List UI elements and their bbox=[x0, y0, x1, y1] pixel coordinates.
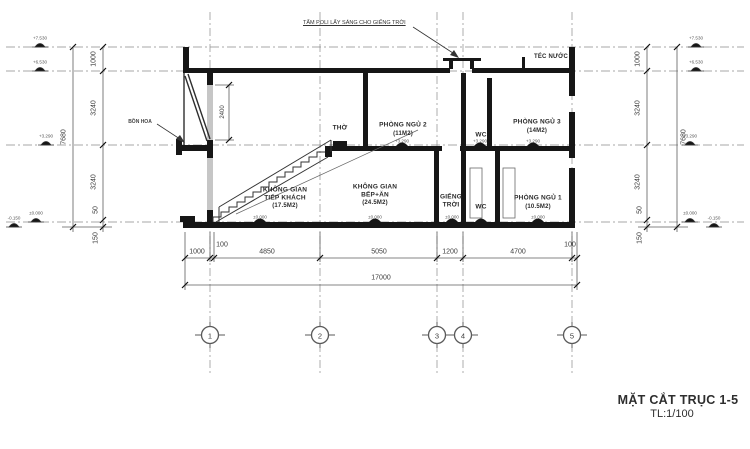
room-label-wc-upper: WC bbox=[475, 132, 486, 139]
room-label-living-1: KHÔNG GIAN bbox=[263, 187, 307, 194]
grid-bubble-1: 1 bbox=[208, 332, 212, 341]
room-label-kitchen-1: KHÔNG GIAN bbox=[353, 184, 397, 191]
room-area-bedroom1: (10.5M2) bbox=[525, 204, 551, 210]
flower-box-label: BỒN HOA bbox=[128, 119, 152, 125]
grid-bubble-5: 5 bbox=[570, 332, 574, 341]
section-linework bbox=[0, 0, 750, 449]
dim-left-3240b: 3240 bbox=[91, 174, 98, 190]
room-area-living: (17.5M2) bbox=[272, 203, 298, 209]
dim-right-3240a: 3240 bbox=[635, 100, 642, 116]
dim-bottom-total-17000: 17000 bbox=[371, 275, 390, 282]
room-area-bedroom3: (14M2) bbox=[527, 128, 547, 134]
room-label-bedroom1: PHÒNG NGỦ 1 bbox=[514, 195, 562, 202]
room-label-lightwell-1: GIẾNG bbox=[440, 194, 462, 201]
dim-left-3240a: 3240 bbox=[91, 100, 98, 116]
dim-bottom-5050: 5050 bbox=[371, 249, 387, 256]
water-tank-label: TÉC NƯỚC bbox=[534, 54, 568, 60]
dim-left-total-7680: 7680 bbox=[61, 129, 68, 145]
section-drawing-sheet: TẤM POLI LẤY SÁNG CHO GIẾNG TRỜI TÉC NƯỚ… bbox=[0, 0, 750, 449]
dim-bottom-4700: 4700 bbox=[510, 249, 526, 256]
dim-bottom-100a: 100 bbox=[216, 242, 228, 249]
dim-bottom-4850: 4850 bbox=[259, 249, 275, 256]
room-label-lightwell-2: TRỜI bbox=[443, 202, 460, 209]
altar-room-label: THỜ bbox=[333, 125, 348, 132]
grid-bubble-4: 4 bbox=[461, 332, 465, 341]
level-top-left: +7.530 bbox=[33, 36, 47, 41]
level-mark-lightwell: ±0.000 bbox=[445, 215, 459, 220]
level-floor2-right: +3.290 bbox=[683, 134, 697, 139]
dim-window-2400: 2400 bbox=[220, 105, 226, 118]
dim-bottom-1000: 1000 bbox=[189, 249, 205, 256]
room-label-wc-lower: WC bbox=[475, 204, 486, 211]
room-label-kitchen-2: BẾP+ĂN bbox=[361, 192, 389, 199]
level-outside-left: -0.150 bbox=[8, 216, 21, 221]
level-mark-bedroom2: +3.290 bbox=[395, 139, 409, 144]
dim-bottom-100b: 100 bbox=[564, 242, 576, 249]
level-outside-right: -0.150 bbox=[708, 216, 721, 221]
dim-right-150: 150 bbox=[637, 232, 644, 244]
grid-bubble-2: 2 bbox=[318, 332, 322, 341]
level-top-right: +7.530 bbox=[689, 36, 703, 41]
level-ground-right: ±0.000 bbox=[683, 211, 697, 216]
room-area-bedroom2: (11M2) bbox=[393, 131, 413, 137]
level-mark-bedroom1: ±0.000 bbox=[531, 215, 545, 220]
level-roof-left: +6.530 bbox=[33, 60, 47, 65]
skylight-annotation: TẤM POLI LẤY SÁNG CHO GIẾNG TRỜI bbox=[303, 20, 406, 26]
drawing-scale: TL:1/100 bbox=[650, 408, 693, 420]
dim-left-1000: 1000 bbox=[91, 51, 98, 67]
grid-bubble-3: 3 bbox=[435, 332, 439, 341]
level-mark-living: ±0.000 bbox=[253, 215, 267, 220]
level-roof-right: +6.530 bbox=[689, 60, 703, 65]
level-ground-left: ±0.000 bbox=[29, 211, 43, 216]
dim-right-50: 50 bbox=[637, 206, 644, 214]
level-mark-wc-upper: +3.290 bbox=[473, 139, 487, 144]
drawing-title: MẶT CẮT TRỤC 1-5 bbox=[618, 393, 739, 407]
dim-right-3240b: 3240 bbox=[635, 174, 642, 190]
room-label-living-2: TIẾP KHÁCH bbox=[264, 195, 306, 202]
level-mark-bedroom3: +3.290 bbox=[526, 139, 540, 144]
level-mark-kitchen: ±0.000 bbox=[368, 215, 382, 220]
dim-right-1000: 1000 bbox=[635, 51, 642, 67]
dim-bottom-1200: 1200 bbox=[442, 249, 458, 256]
level-floor2-left: +3.290 bbox=[39, 134, 53, 139]
dim-left-50: 50 bbox=[93, 206, 100, 214]
dim-left-150: 150 bbox=[93, 232, 100, 244]
room-label-bedroom3: PHÒNG NGỦ 3 bbox=[513, 119, 561, 126]
room-label-bedroom2: PHÒNG NGỦ 2 bbox=[379, 122, 427, 129]
room-area-kitchen: (24.5M2) bbox=[362, 200, 388, 206]
